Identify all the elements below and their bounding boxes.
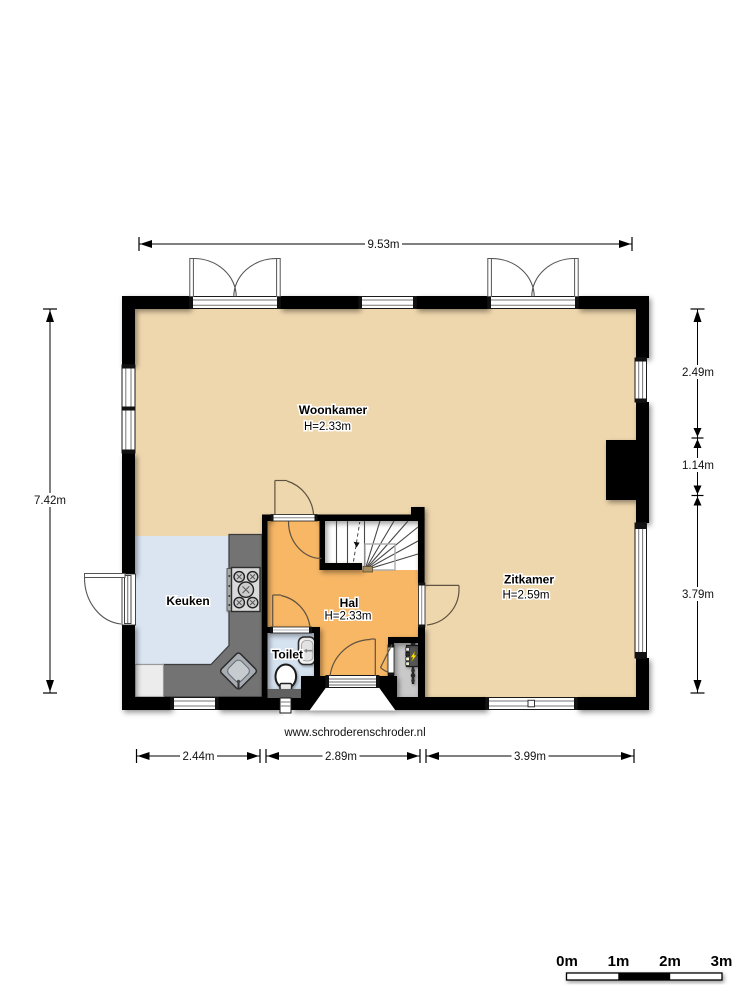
svg-text:3m: 3m: [711, 953, 733, 970]
svg-text:Hal: Hal: [340, 596, 359, 610]
svg-text:Zitkamer: Zitkamer: [504, 573, 554, 587]
svg-text:1.14m: 1.14m: [682, 460, 714, 472]
svg-text:9.53m: 9.53m: [368, 239, 400, 251]
svg-text:7.42m: 7.42m: [34, 495, 66, 507]
svg-text:0m: 0m: [556, 953, 578, 970]
svg-text:H=2.33m: H=2.33m: [325, 611, 372, 623]
svg-text:2.44m: 2.44m: [183, 751, 215, 763]
svg-text:2.49m: 2.49m: [682, 367, 714, 379]
svg-text:Keuken: Keuken: [166, 594, 209, 608]
svg-text:H=2.33m: H=2.33m: [304, 421, 351, 433]
svg-text:3.99m: 3.99m: [514, 751, 546, 763]
svg-text:Toilet: Toilet: [272, 648, 303, 662]
svg-text:3.79m: 3.79m: [682, 589, 714, 601]
svg-text:1m: 1m: [608, 953, 630, 970]
svg-text:2m: 2m: [659, 953, 681, 970]
svg-text:www.schroderenschroder.nl: www.schroderenschroder.nl: [283, 727, 425, 739]
svg-text:Woonkamer: Woonkamer: [299, 403, 368, 417]
svg-text:H=2.59m: H=2.59m: [503, 590, 550, 602]
svg-text:2.89m: 2.89m: [325, 751, 357, 763]
